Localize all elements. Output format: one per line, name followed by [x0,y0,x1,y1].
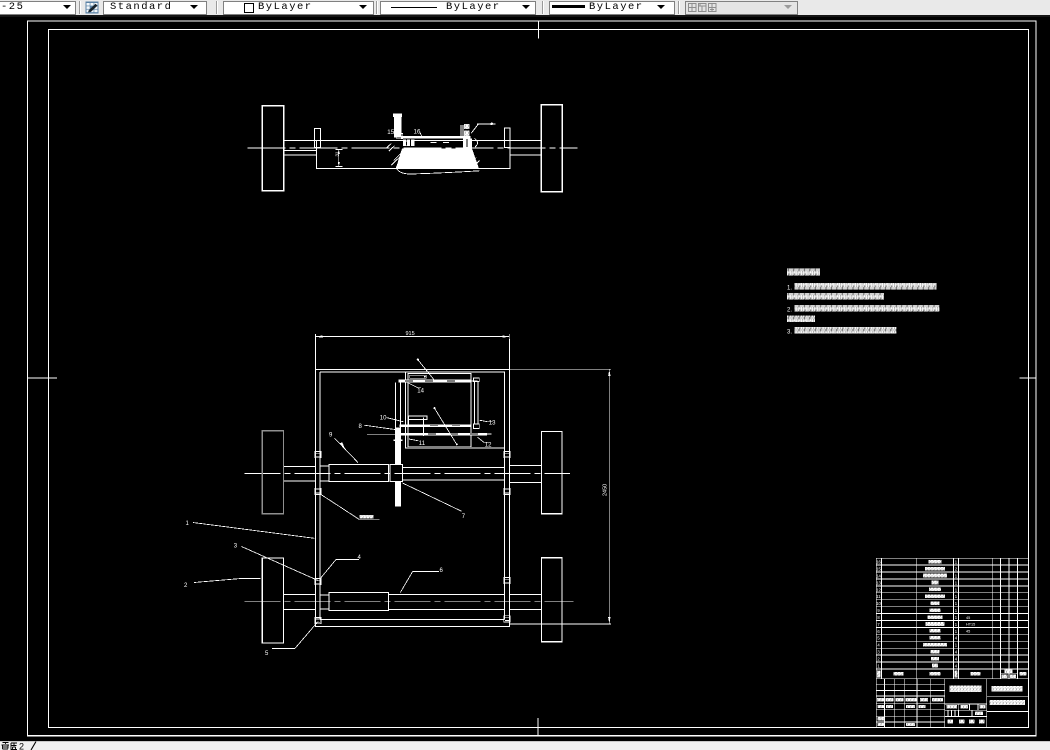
svg-text:2: 2 [877,657,880,662]
svg-text:1: 1 [955,594,958,599]
svg-text:1: 1 [877,663,880,668]
svg-text:1: 1 [955,580,958,585]
svg-text:14: 14 [417,388,424,394]
svg-text:4: 4 [955,657,958,662]
svg-text:16: 16 [414,129,421,136]
svg-text:1: 1 [955,587,958,592]
svg-text:9: 9 [329,433,333,439]
svg-text:3: 3 [877,650,880,655]
svg-text:1: 1 [955,560,958,565]
svg-text:6: 6 [877,629,880,634]
svg-text:1: 1 [955,629,958,634]
svg-text:15: 15 [876,567,881,572]
svg-text:915: 915 [406,331,415,337]
svg-text:3: 3 [234,544,238,550]
svg-text:14: 14 [876,573,881,578]
svg-text:13: 13 [489,421,496,427]
svg-text:2450: 2450 [603,484,609,496]
svg-text:45: 45 [966,630,970,634]
svg-text:7: 7 [462,514,466,520]
svg-text:9: 9 [877,608,880,613]
svg-text:4: 4 [877,643,880,648]
svg-text:4: 4 [955,650,958,655]
svg-text:3.: 3. [787,329,792,335]
svg-text:8: 8 [359,424,363,430]
svg-text:31: 31 [334,151,339,157]
svg-text:13: 13 [876,580,881,585]
svg-text:11: 11 [419,441,426,447]
svg-text:12: 12 [485,443,492,449]
svg-text:1: 1 [955,601,958,606]
svg-text:11: 11 [876,594,881,599]
svg-text:6: 6 [440,568,444,574]
svg-text:1: 1 [955,615,958,620]
svg-text:1.: 1. [787,286,792,292]
svg-text:15: 15 [387,129,394,136]
svg-text:1: 1 [955,573,958,578]
svg-text:HT15: HT15 [966,623,975,627]
svg-text:8: 8 [877,615,880,620]
svg-text:7: 7 [877,622,880,627]
svg-text:2: 2 [184,583,188,589]
svg-text:1: 1 [955,643,958,648]
svg-text:4: 4 [955,636,958,641]
svg-text:1: 1 [955,622,958,627]
svg-text:45: 45 [966,616,970,620]
svg-text:10: 10 [876,601,881,606]
svg-text:4: 4 [955,663,958,668]
svg-text:16: 16 [876,560,881,565]
svg-text:5: 5 [265,651,269,657]
svg-text:10: 10 [380,416,387,422]
svg-text:2.: 2. [787,308,792,314]
svg-text:1: 1 [955,608,958,613]
svg-text:12: 12 [876,587,881,592]
svg-text:1: 1 [186,521,190,527]
svg-text:2: 2 [955,567,958,572]
svg-text:5: 5 [877,636,880,641]
svg-text:4: 4 [358,555,362,561]
